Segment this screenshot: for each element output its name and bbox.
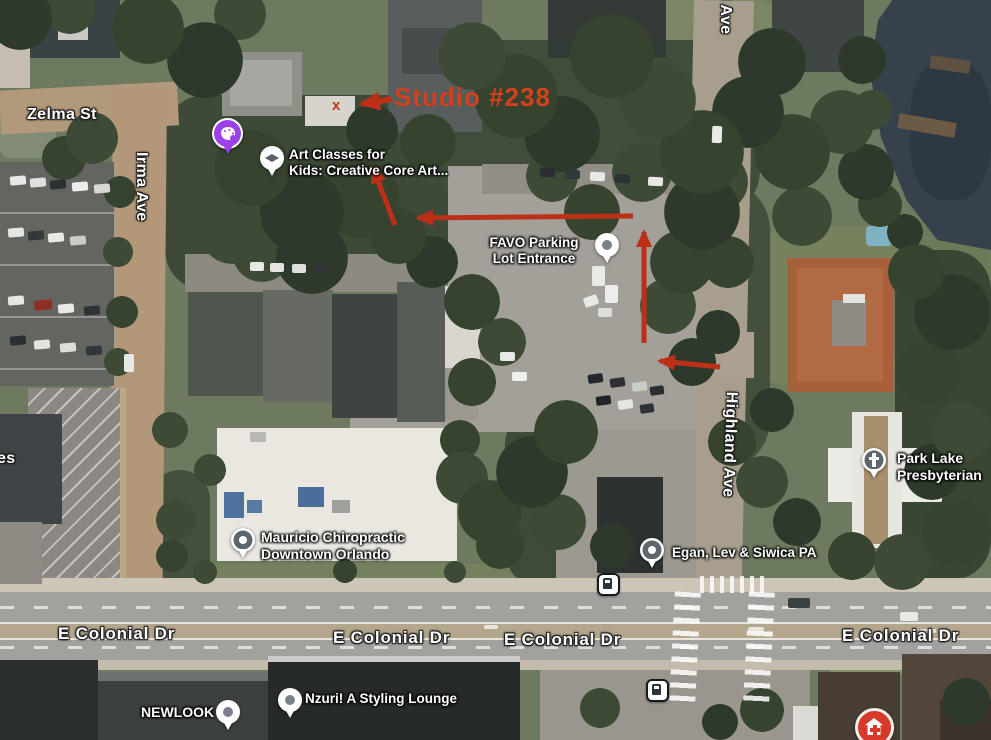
poi-pin-egan[interactable] xyxy=(640,538,664,571)
location-pin-newlook[interactable] xyxy=(216,700,240,733)
street-label-highland: Highland Ave xyxy=(718,391,740,497)
park-lake-label[interactable]: Park LakePresbyterian xyxy=(897,450,982,483)
street-label-highland-top: d Ave xyxy=(716,0,734,34)
bus-stop-icon[interactable] xyxy=(597,573,620,596)
hospital-icon[interactable] xyxy=(855,708,894,740)
street-label-colonial-2: E Colonial Dr xyxy=(333,628,450,648)
poi-pin-mauricio[interactable] xyxy=(231,528,255,561)
nzuri-label[interactable]: Nzuri! A Styling Lounge xyxy=(305,691,457,707)
art-classes-label[interactable]: Art Classes forKids: Creative Core Art..… xyxy=(289,147,448,179)
street-label-colonial-4: E Colonial Dr xyxy=(842,626,959,646)
palette-pin[interactable] xyxy=(214,120,242,158)
location-pin-nzuri[interactable] xyxy=(278,688,302,721)
satellite-map[interactable]: Studio #238 x Zelma St Irma Ave d Ave Hi… xyxy=(0,0,991,740)
street-label-cutoff: es xyxy=(0,450,16,468)
location-pin-favo[interactable] xyxy=(595,233,619,266)
egan-label[interactable]: Egan, Lev & Siwica PA xyxy=(672,545,817,561)
newlook-label[interactable]: NEWLOOK xyxy=(141,704,214,721)
bus-stop-icon[interactable] xyxy=(646,679,669,702)
studio-238-label: Studio #238 xyxy=(394,82,551,113)
street-label-zelma: Zelma St xyxy=(27,106,97,124)
favo-label[interactable]: FAVO ParkingLot Entrance xyxy=(478,235,590,267)
education-pin[interactable] xyxy=(260,146,284,179)
street-label-irma: Irma Ave xyxy=(132,152,150,222)
street-label-colonial-1: E Colonial Dr xyxy=(58,624,175,644)
mauricio-label[interactable]: Mauricio ChiropracticDowntown Orlando xyxy=(261,529,405,562)
street-label-colonial-3: E Colonial Dr xyxy=(504,630,621,650)
x-marker: x xyxy=(332,97,340,114)
church-pin[interactable] xyxy=(862,448,886,481)
